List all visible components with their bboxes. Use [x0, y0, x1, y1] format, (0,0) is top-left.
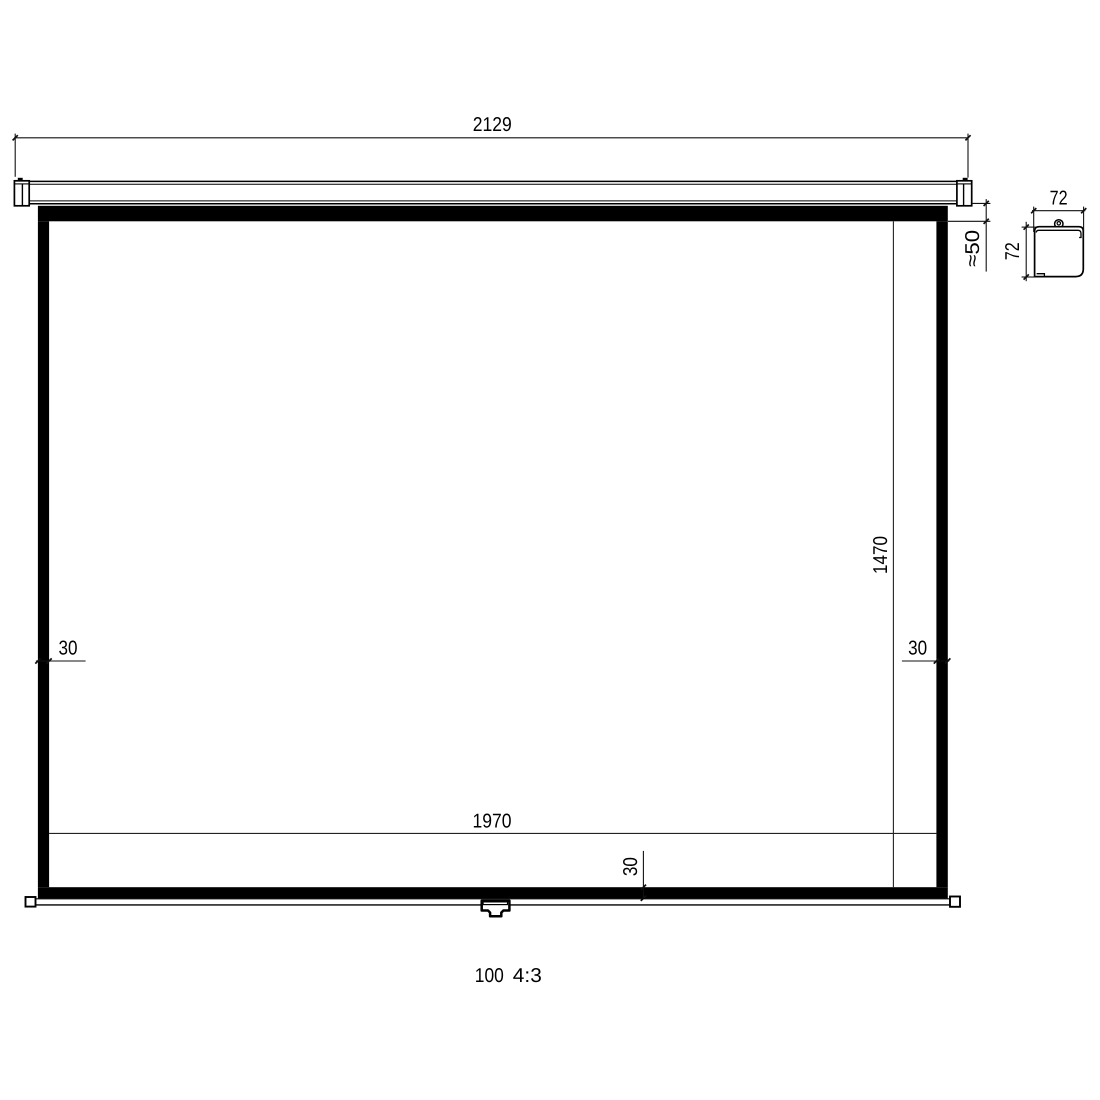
svg-text:4:3: 4:3 — [513, 965, 542, 987]
svg-text:30: 30 — [908, 638, 927, 660]
svg-text:2129: 2129 — [473, 114, 512, 136]
svg-text:1470: 1470 — [870, 536, 892, 574]
svg-text:72: 72 — [1002, 242, 1024, 260]
svg-text:30: 30 — [620, 857, 642, 876]
svg-text:30: 30 — [59, 638, 78, 660]
svg-text:72: 72 — [1050, 187, 1068, 209]
svg-text:1970: 1970 — [473, 811, 512, 833]
svg-text:≈50: ≈50 — [962, 230, 984, 267]
svg-text:100: 100 — [475, 965, 504, 987]
